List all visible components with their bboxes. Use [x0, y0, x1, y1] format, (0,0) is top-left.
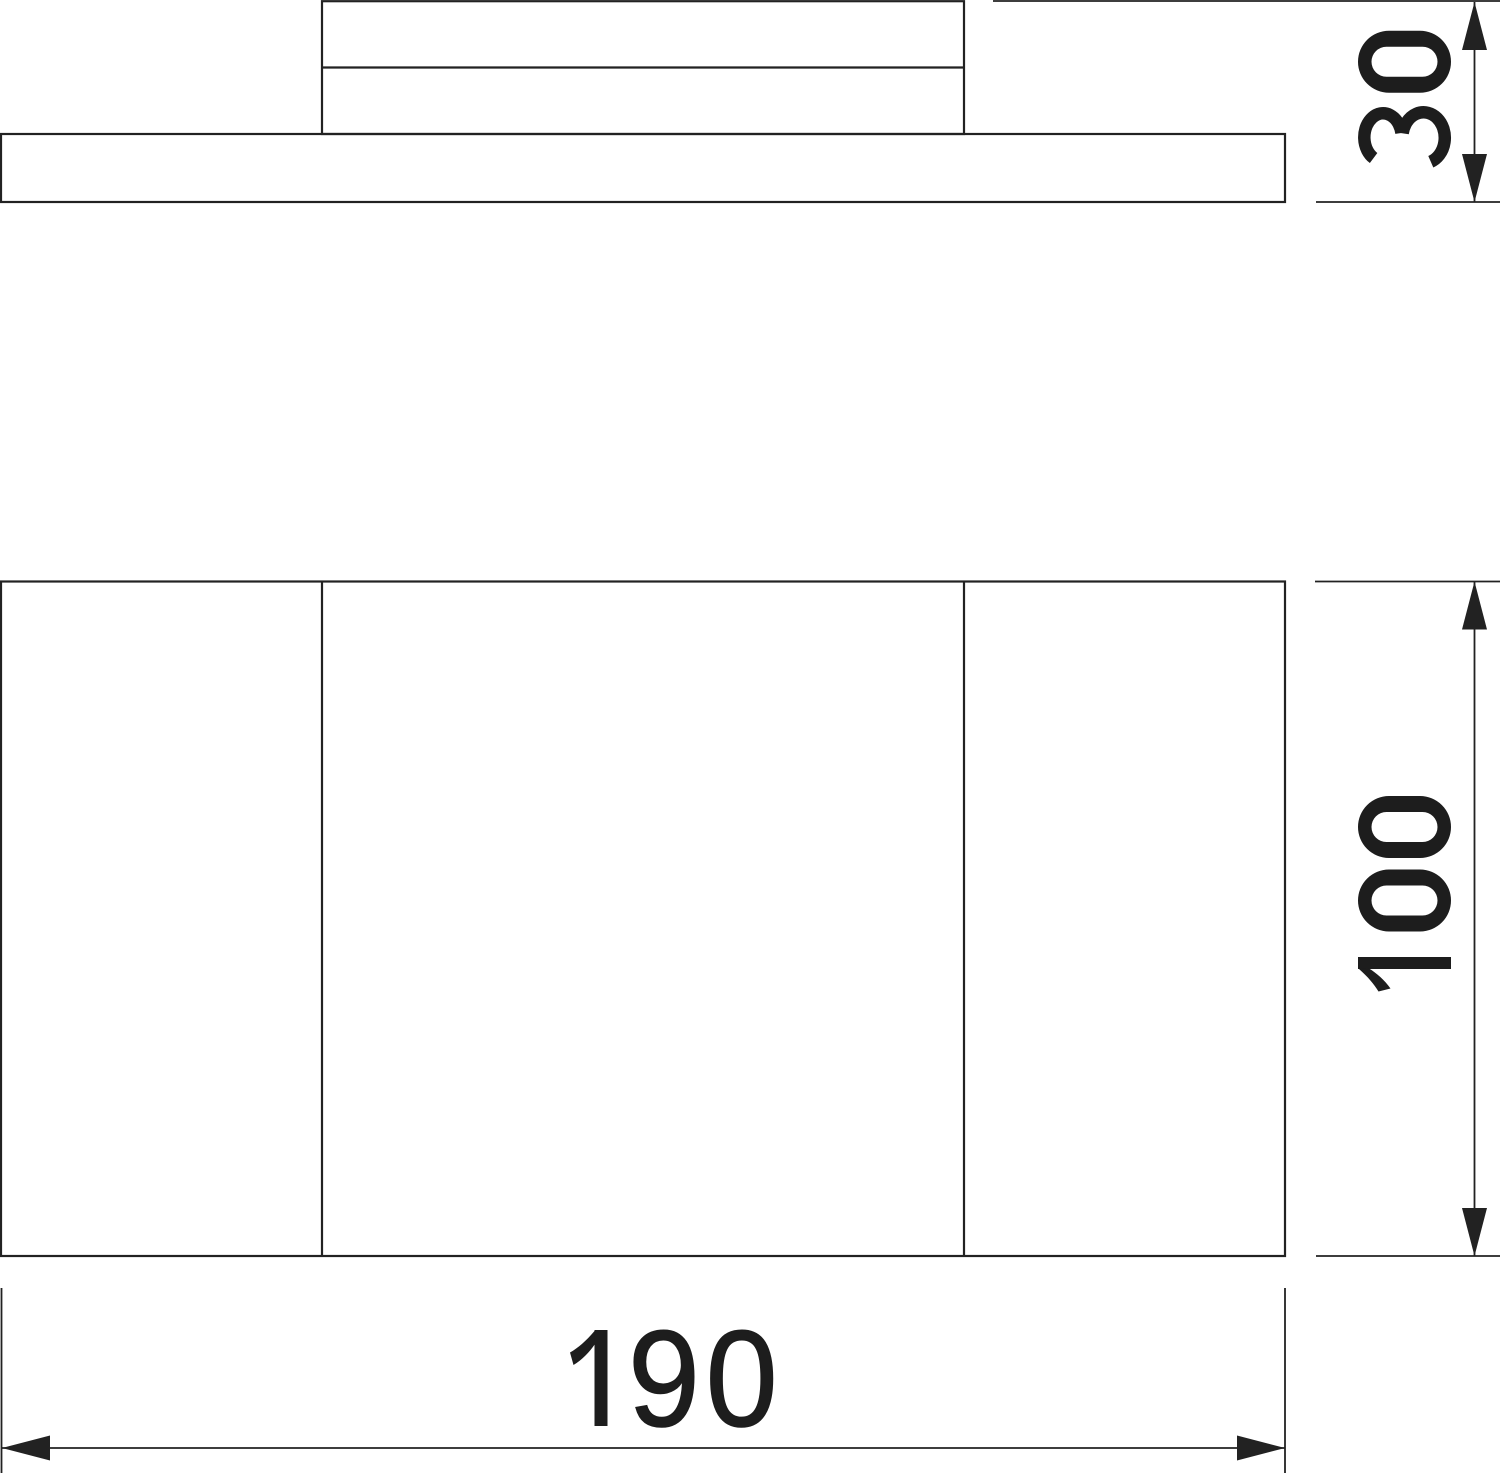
svg-text:90: 90 [628, 1302, 783, 1455]
